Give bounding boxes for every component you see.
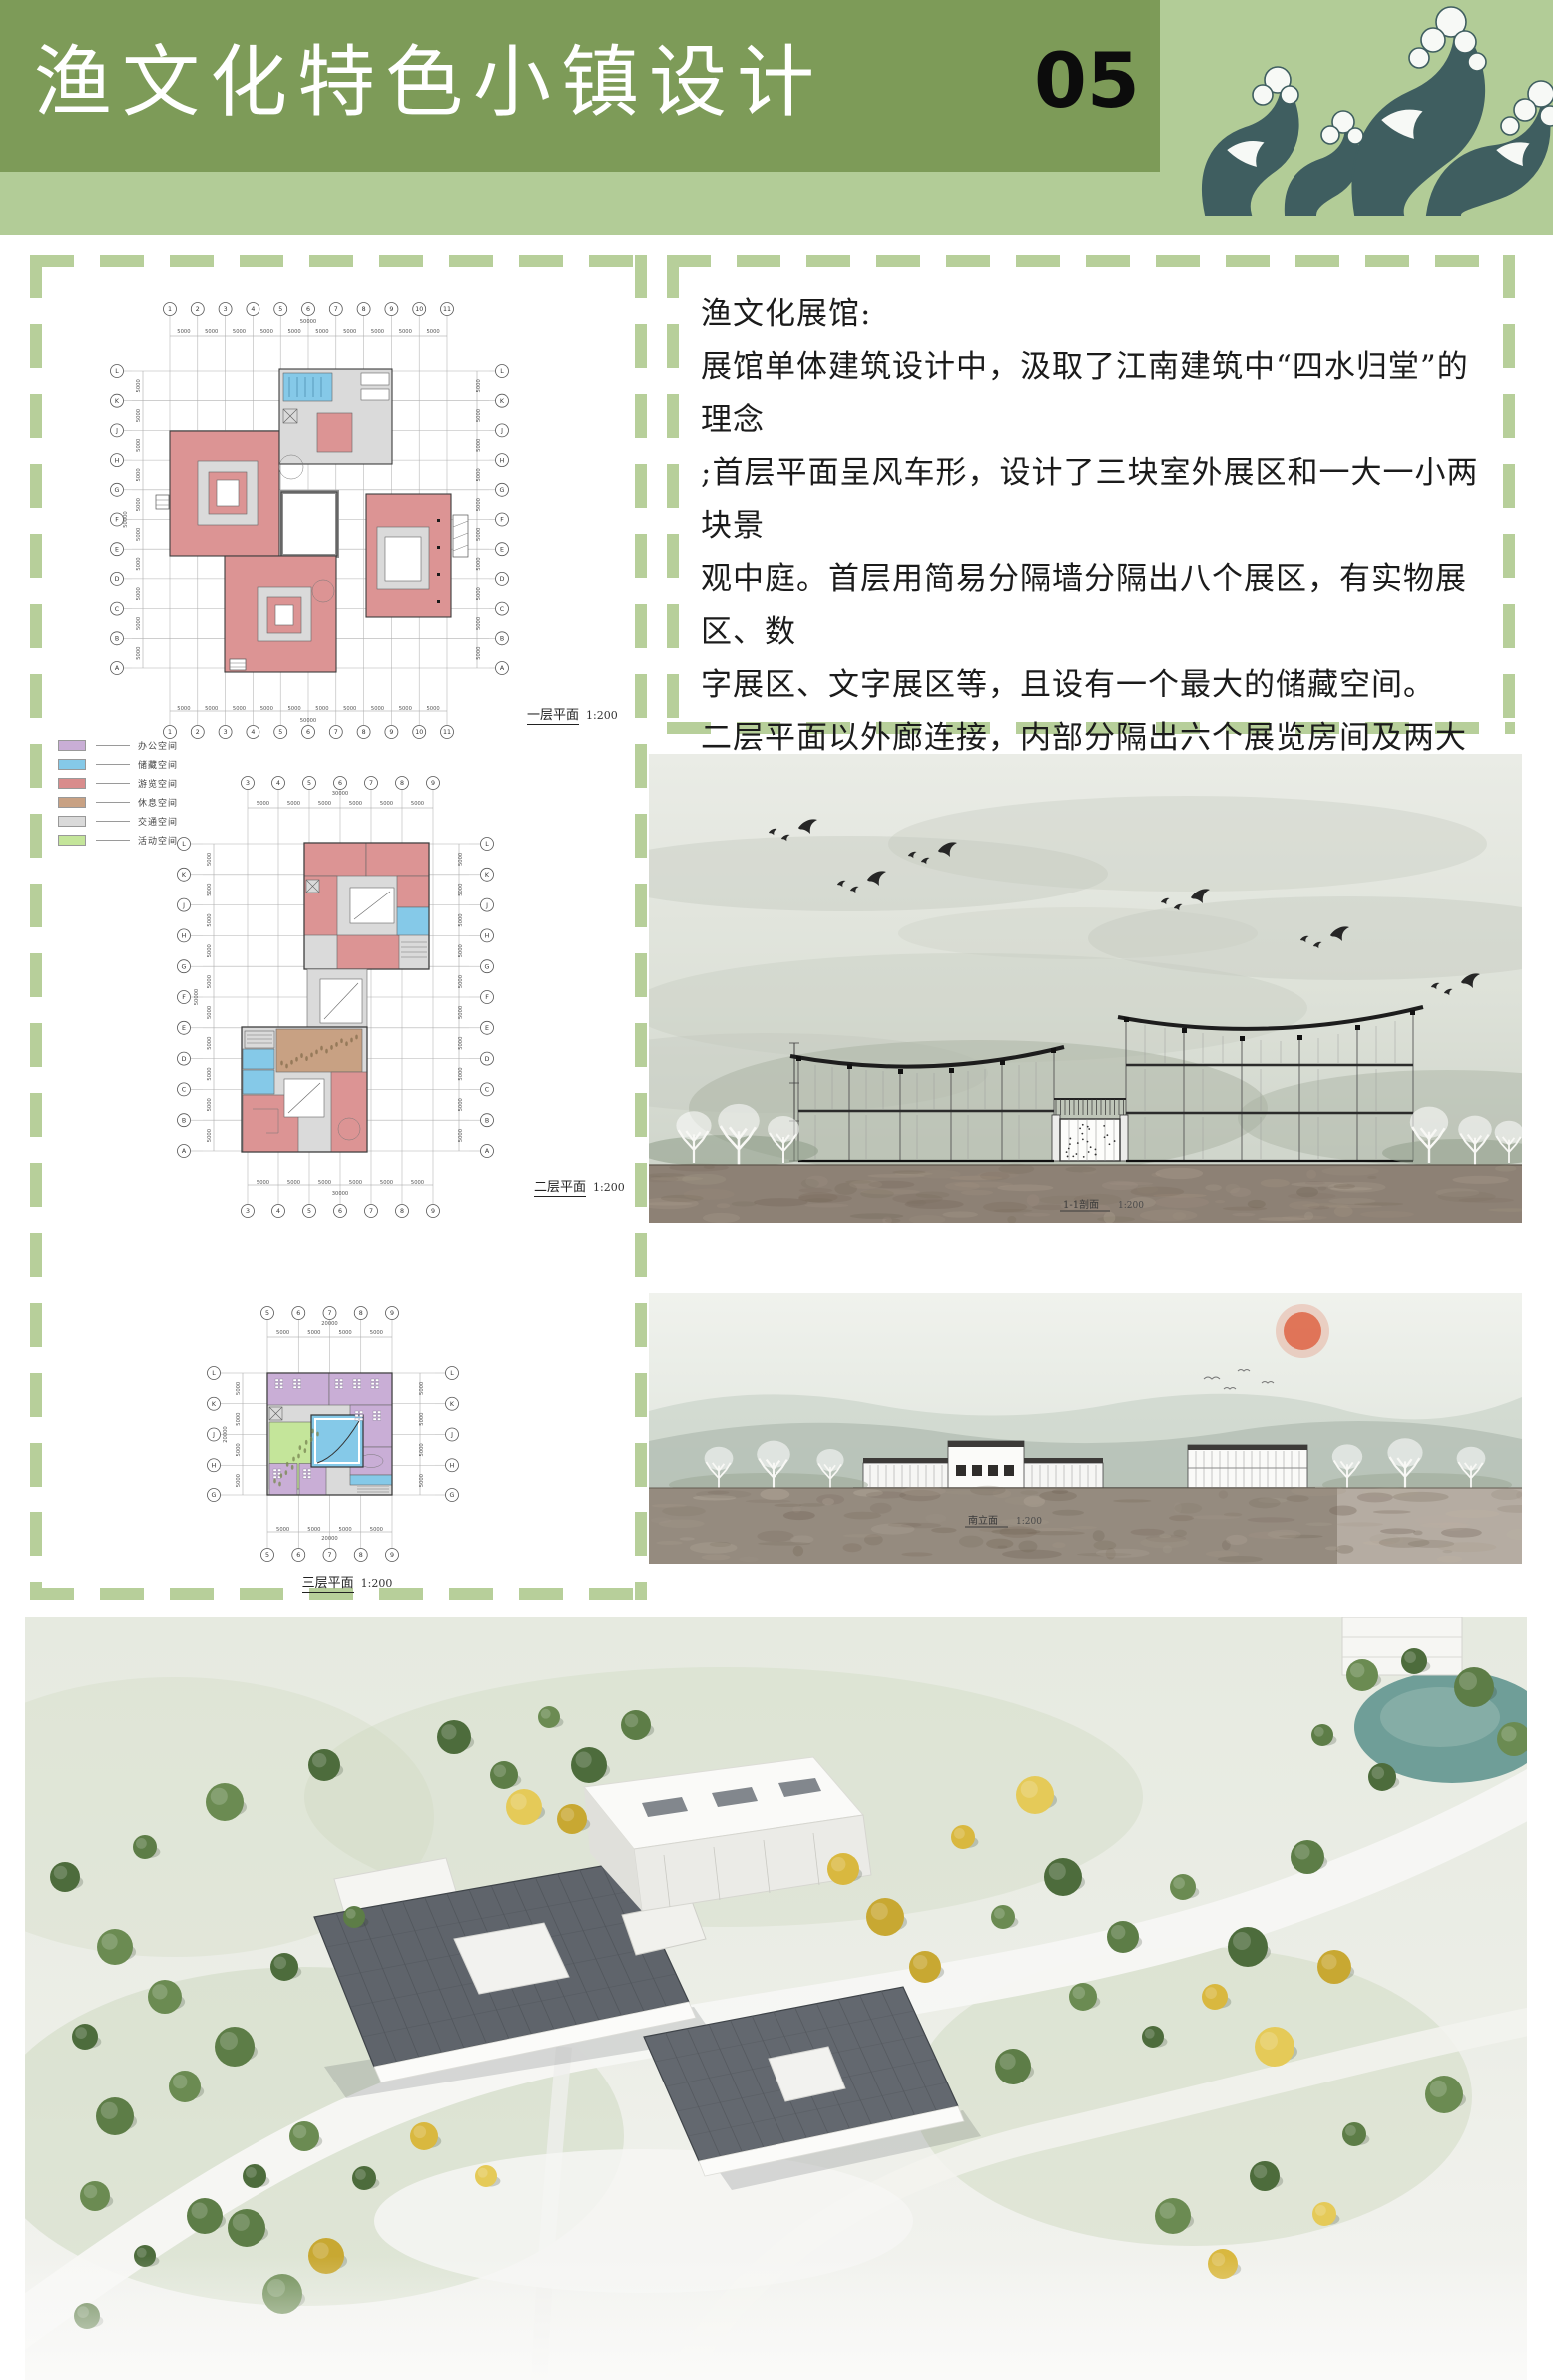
plan-name: 二层平面 xyxy=(534,1180,586,1197)
svg-text:5000: 5000 xyxy=(458,1098,464,1111)
svg-text:1: 1 xyxy=(168,306,172,313)
svg-text:B: B xyxy=(182,1117,186,1124)
svg-text:5000: 5000 xyxy=(287,1180,300,1186)
svg-text:5000: 5000 xyxy=(426,329,439,335)
svg-text:5000: 5000 xyxy=(458,853,464,866)
svg-text:8: 8 xyxy=(400,780,404,787)
svg-text:5000: 5000 xyxy=(205,329,218,335)
svg-text:A: A xyxy=(485,1148,490,1155)
section-drawing-svg: 1-1剖面 1:200 xyxy=(649,754,1522,1223)
svg-text:5000: 5000 xyxy=(458,1006,464,1019)
svg-text:5000: 5000 xyxy=(287,329,300,335)
description-panel: 渔文化展馆: 展馆单体建筑设计中，汲取了江南建筑中“四水归堂”的理念 ;首层平面… xyxy=(667,255,1515,734)
svg-text:5000: 5000 xyxy=(207,1037,213,1050)
svg-text:10: 10 xyxy=(415,306,423,313)
svg-text:50000: 50000 xyxy=(300,718,317,724)
svg-text:D: D xyxy=(182,1056,187,1063)
svg-text:3: 3 xyxy=(224,306,228,313)
svg-text:9: 9 xyxy=(390,1552,394,1559)
svg-text:G: G xyxy=(212,1492,217,1499)
svg-text:5000: 5000 xyxy=(205,706,218,712)
svg-text:H: H xyxy=(212,1462,217,1469)
aerial-render-image xyxy=(25,1617,1527,2380)
svg-text:20000: 20000 xyxy=(223,1426,229,1443)
svg-text:5000: 5000 xyxy=(136,617,142,630)
svg-text:7: 7 xyxy=(327,1552,331,1559)
svg-text:5000: 5000 xyxy=(476,557,482,570)
svg-text:6: 6 xyxy=(338,1208,342,1215)
svg-text:F: F xyxy=(485,994,489,1001)
aerial-render-svg xyxy=(25,1617,1527,2380)
svg-text:5000: 5000 xyxy=(458,944,464,957)
description-line: ;首层平面呈风车形，设计了三块室外展区和一大一小两块景 xyxy=(701,447,1497,553)
svg-text:5000: 5000 xyxy=(419,1443,425,1456)
svg-text:5000: 5000 xyxy=(207,913,213,926)
svg-text:6: 6 xyxy=(306,729,310,736)
svg-text:5000: 5000 xyxy=(287,706,300,712)
wave-icon xyxy=(1166,0,1553,225)
svg-text:5000: 5000 xyxy=(399,706,412,712)
svg-text:H: H xyxy=(182,933,187,940)
page-title: 渔文化特色小镇设计 xyxy=(34,20,824,132)
legend-swatch xyxy=(58,759,86,770)
svg-text:5000: 5000 xyxy=(136,557,142,570)
description-heading: 渔文化展馆: xyxy=(701,289,1497,341)
legend-line xyxy=(96,783,130,784)
svg-text:5000: 5000 xyxy=(276,1330,289,1336)
svg-text:4: 4 xyxy=(251,306,255,313)
plan-label-first-floor: 一层平面1:200 xyxy=(527,704,618,723)
svg-text:L: L xyxy=(450,1370,454,1377)
svg-text:5: 5 xyxy=(278,729,282,736)
svg-text:7: 7 xyxy=(327,1310,331,1317)
section-scale: 1:200 xyxy=(1118,1201,1144,1211)
plan-label-second-floor: 二层平面1:200 xyxy=(534,1176,625,1195)
svg-text:2: 2 xyxy=(196,729,200,736)
svg-text:A: A xyxy=(115,665,120,672)
svg-text:8: 8 xyxy=(400,1208,404,1215)
svg-text:5000: 5000 xyxy=(339,1527,352,1533)
svg-text:7: 7 xyxy=(334,306,338,313)
svg-text:E: E xyxy=(115,546,119,553)
svg-text:B: B xyxy=(485,1117,489,1124)
svg-text:D: D xyxy=(485,1056,490,1063)
svg-text:20000: 20000 xyxy=(321,1536,338,1542)
dashed-border-right xyxy=(1503,255,1515,734)
dashed-border-left xyxy=(667,255,679,734)
svg-text:5: 5 xyxy=(265,1552,269,1559)
svg-text:5000: 5000 xyxy=(136,528,142,541)
svg-text:5000: 5000 xyxy=(370,1330,383,1336)
svg-text:5000: 5000 xyxy=(207,853,213,866)
svg-text:5000: 5000 xyxy=(236,1382,242,1395)
svg-text:H: H xyxy=(450,1462,455,1469)
svg-text:5000: 5000 xyxy=(458,1067,464,1080)
svg-text:5000: 5000 xyxy=(411,801,424,807)
svg-text:5000: 5000 xyxy=(287,801,300,807)
svg-text:B: B xyxy=(115,636,119,643)
legend-line xyxy=(96,764,130,765)
svg-text:5000: 5000 xyxy=(349,1180,362,1186)
svg-text:5000: 5000 xyxy=(343,706,356,712)
svg-text:5000: 5000 xyxy=(458,884,464,896)
svg-text:30000: 30000 xyxy=(332,1191,349,1197)
page-number: 05 xyxy=(1034,36,1140,125)
svg-text:10: 10 xyxy=(415,729,423,736)
svg-text:3: 3 xyxy=(246,1208,250,1215)
svg-text:E: E xyxy=(500,546,504,553)
legend-line xyxy=(96,821,130,822)
svg-text:5000: 5000 xyxy=(136,587,142,600)
svg-text:5000: 5000 xyxy=(136,498,142,511)
svg-text:4: 4 xyxy=(251,729,255,736)
svg-text:4: 4 xyxy=(276,780,280,787)
svg-text:7: 7 xyxy=(369,780,373,787)
description-line: 展馆单体建筑设计中，汲取了江南建筑中“四水归堂”的理念 xyxy=(701,341,1497,447)
svg-text:5000: 5000 xyxy=(458,1129,464,1142)
svg-text:L: L xyxy=(500,368,504,375)
elevation-scale: 1:200 xyxy=(1016,1517,1042,1527)
svg-text:5000: 5000 xyxy=(419,1413,425,1426)
svg-text:5000: 5000 xyxy=(236,1443,242,1456)
svg-text:G: G xyxy=(450,1492,455,1499)
legend-line xyxy=(96,840,130,841)
svg-text:C: C xyxy=(500,606,505,613)
svg-text:5000: 5000 xyxy=(207,884,213,896)
svg-text:A: A xyxy=(500,665,505,672)
svg-text:H: H xyxy=(500,457,505,464)
svg-text:5000: 5000 xyxy=(476,587,482,600)
legend-line xyxy=(96,745,130,746)
svg-text:5: 5 xyxy=(307,1208,311,1215)
svg-text:6: 6 xyxy=(296,1552,300,1559)
svg-text:5000: 5000 xyxy=(476,468,482,481)
plan-scale: 1:200 xyxy=(593,1181,625,1194)
svg-text:20000: 20000 xyxy=(321,1321,338,1327)
svg-text:5000: 5000 xyxy=(476,498,482,511)
svg-text:J: J xyxy=(115,428,118,435)
svg-text:G: G xyxy=(182,963,187,970)
legend-swatch xyxy=(58,778,86,789)
svg-text:5000: 5000 xyxy=(458,975,464,988)
svg-text:5000: 5000 xyxy=(476,647,482,660)
svg-text:5000: 5000 xyxy=(207,975,213,988)
svg-text:J: J xyxy=(500,428,503,435)
svg-text:5000: 5000 xyxy=(426,706,439,712)
svg-text:50000: 50000 xyxy=(194,989,200,1006)
svg-text:50000: 50000 xyxy=(123,511,129,528)
svg-text:G: G xyxy=(115,487,120,494)
svg-text:9: 9 xyxy=(389,306,393,313)
svg-text:5000: 5000 xyxy=(207,1006,213,1019)
section-label: 1-1剖面 xyxy=(1063,1198,1099,1211)
svg-text:5000: 5000 xyxy=(257,1180,269,1186)
svg-text:5000: 5000 xyxy=(476,528,482,541)
svg-text:L: L xyxy=(212,1370,216,1377)
svg-text:5000: 5000 xyxy=(257,801,269,807)
legend-swatch xyxy=(58,816,86,827)
legend-line xyxy=(96,802,130,803)
plan-name: 三层平面 xyxy=(302,1576,354,1593)
svg-text:9: 9 xyxy=(431,780,435,787)
svg-text:7: 7 xyxy=(334,729,338,736)
svg-text:5000: 5000 xyxy=(370,1527,383,1533)
svg-text:5000: 5000 xyxy=(177,329,190,335)
svg-text:J: J xyxy=(485,902,488,909)
svg-text:8: 8 xyxy=(362,729,366,736)
plan-name: 一层平面 xyxy=(527,708,579,725)
svg-text:5000: 5000 xyxy=(177,706,190,712)
svg-text:11: 11 xyxy=(443,306,451,313)
svg-text:J: J xyxy=(182,902,185,909)
svg-text:5000: 5000 xyxy=(136,647,142,660)
svg-text:A: A xyxy=(182,1148,187,1155)
svg-text:9: 9 xyxy=(390,1310,394,1317)
legend-swatch xyxy=(58,740,86,751)
dashed-border-top xyxy=(667,255,1515,267)
svg-text:5000: 5000 xyxy=(315,329,328,335)
plan3-rooms xyxy=(267,1373,392,1495)
svg-text:5000: 5000 xyxy=(318,1180,331,1186)
second-floor-plan-drawing: 3350005000445000500055500050006650005000… xyxy=(145,740,644,1231)
svg-text:9: 9 xyxy=(389,729,393,736)
plan-label-third-floor: 三层平面1:200 xyxy=(267,1572,427,1591)
svg-text:C: C xyxy=(182,1087,187,1094)
plan-scale: 1:200 xyxy=(586,709,618,722)
svg-text:5000: 5000 xyxy=(260,329,273,335)
svg-text:5000: 5000 xyxy=(260,706,273,712)
svg-text:5000: 5000 xyxy=(343,329,356,335)
svg-text:L: L xyxy=(182,841,186,848)
svg-text:9: 9 xyxy=(431,1208,435,1215)
svg-text:5000: 5000 xyxy=(380,1180,393,1186)
svg-text:5000: 5000 xyxy=(349,801,362,807)
svg-text:7: 7 xyxy=(369,1208,373,1215)
svg-text:G: G xyxy=(485,963,490,970)
svg-text:D: D xyxy=(500,576,505,583)
svg-text:C: C xyxy=(485,1087,490,1094)
floor-plans-panel: 1150005000225000500033500050004450005000… xyxy=(30,255,647,1600)
svg-text:5000: 5000 xyxy=(233,329,246,335)
svg-text:5000: 5000 xyxy=(399,329,412,335)
svg-text:3: 3 xyxy=(224,729,228,736)
plan-scale: 1:200 xyxy=(361,1577,393,1590)
svg-text:5000: 5000 xyxy=(458,913,464,926)
svg-text:H: H xyxy=(485,933,490,940)
section-drawing-image: 1-1剖面 1:200 xyxy=(649,754,1522,1223)
svg-text:5000: 5000 xyxy=(318,801,331,807)
svg-text:5000: 5000 xyxy=(233,706,246,712)
sun xyxy=(1284,1312,1321,1350)
svg-text:6: 6 xyxy=(296,1310,300,1317)
svg-text:J: J xyxy=(450,1432,453,1439)
svg-text:8: 8 xyxy=(359,1310,363,1317)
svg-text:5000: 5000 xyxy=(307,1330,320,1336)
plan1-rooms xyxy=(156,369,468,672)
svg-text:5000: 5000 xyxy=(207,944,213,957)
svg-text:F: F xyxy=(115,517,119,524)
svg-text:5000: 5000 xyxy=(339,1330,352,1336)
svg-text:5000: 5000 xyxy=(419,1382,425,1395)
svg-text:5000: 5000 xyxy=(315,706,328,712)
svg-text:5000: 5000 xyxy=(136,409,142,422)
svg-text:5000: 5000 xyxy=(371,706,384,712)
svg-text:5000: 5000 xyxy=(307,1527,320,1533)
elevation-label: 南立面 xyxy=(968,1514,998,1527)
svg-text:8: 8 xyxy=(362,306,366,313)
legend-swatch xyxy=(58,835,86,846)
svg-text:L: L xyxy=(485,841,489,848)
svg-text:C: C xyxy=(115,606,120,613)
svg-text:8: 8 xyxy=(359,1552,363,1559)
svg-text:5000: 5000 xyxy=(476,617,482,630)
svg-text:1: 1 xyxy=(168,729,172,736)
description-line: 字展区、文字展区等，且设有一个最大的储藏空间。 xyxy=(701,659,1497,712)
svg-text:3: 3 xyxy=(246,780,250,787)
svg-text:J: J xyxy=(212,1432,215,1439)
elevation-drawing-svg: 南立面 1:200 xyxy=(649,1293,1522,1564)
svg-text:5000: 5000 xyxy=(476,439,482,452)
legend-swatch xyxy=(58,797,86,808)
svg-text:6: 6 xyxy=(306,306,310,313)
svg-text:5000: 5000 xyxy=(371,329,384,335)
elevation-drawing-image: 南立面 1:200 xyxy=(649,1293,1522,1564)
svg-text:L: L xyxy=(115,368,119,375)
svg-text:5000: 5000 xyxy=(476,379,482,392)
svg-text:5: 5 xyxy=(265,1310,269,1317)
svg-text:F: F xyxy=(182,994,186,1001)
svg-text:5000: 5000 xyxy=(136,468,142,481)
svg-text:2: 2 xyxy=(196,306,200,313)
svg-text:G: G xyxy=(500,487,505,494)
dashed-border-top xyxy=(30,255,647,267)
svg-text:5000: 5000 xyxy=(236,1474,242,1487)
svg-text:5000: 5000 xyxy=(458,1037,464,1050)
svg-text:5: 5 xyxy=(307,780,311,787)
svg-text:5000: 5000 xyxy=(476,409,482,422)
svg-text:5000: 5000 xyxy=(276,1527,289,1533)
page-header: 渔文化特色小镇设计 05 xyxy=(0,0,1553,235)
svg-text:B: B xyxy=(500,636,504,643)
svg-text:5000: 5000 xyxy=(207,1067,213,1080)
svg-text:6: 6 xyxy=(338,780,342,787)
svg-text:4: 4 xyxy=(276,1208,280,1215)
svg-text:5000: 5000 xyxy=(207,1098,213,1111)
svg-text:5000: 5000 xyxy=(419,1474,425,1487)
dashed-border-left xyxy=(30,255,42,1600)
svg-text:30000: 30000 xyxy=(332,791,349,797)
svg-text:E: E xyxy=(485,1025,489,1032)
svg-text:5000: 5000 xyxy=(380,801,393,807)
svg-text:5: 5 xyxy=(278,306,282,313)
svg-text:E: E xyxy=(182,1025,186,1032)
svg-text:D: D xyxy=(115,576,120,583)
svg-text:5000: 5000 xyxy=(136,439,142,452)
svg-text:11: 11 xyxy=(443,729,451,736)
svg-text:F: F xyxy=(500,517,504,524)
svg-text:50000: 50000 xyxy=(300,319,317,325)
first-floor-plan-drawing: 1150005000225000500033500050004450005000… xyxy=(60,270,599,749)
svg-text:5000: 5000 xyxy=(411,1180,424,1186)
svg-text:5000: 5000 xyxy=(207,1129,213,1142)
description-line: 观中庭。首层用简易分隔墙分隔出八个展区，有实物展区、数 xyxy=(701,553,1497,659)
third-floor-plan-drawing: 5550005000665000500077500050008850005000… xyxy=(178,1273,507,1572)
svg-text:5000: 5000 xyxy=(136,379,142,392)
svg-text:5000: 5000 xyxy=(236,1413,242,1426)
svg-text:H: H xyxy=(115,457,120,464)
